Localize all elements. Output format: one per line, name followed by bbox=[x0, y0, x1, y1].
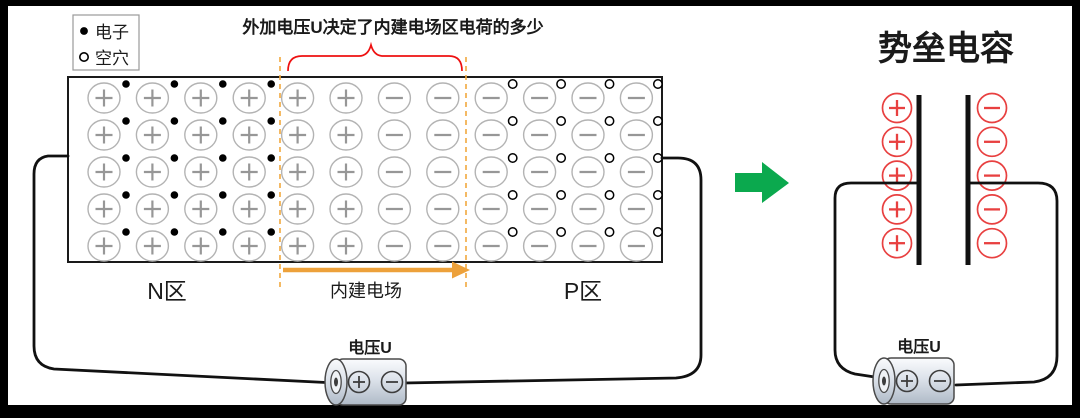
capacitor-title: 势垒电容 bbox=[878, 30, 1014, 68]
legend-label-electron: 电子 bbox=[95, 23, 129, 42]
battery-right bbox=[873, 358, 954, 404]
diagram-canvas: 电子 空穴 外加电压U决定了内建电场区电荷的多少 N区 内建电场 P区 电压U … bbox=[0, 0, 1080, 418]
p-region-label: P区 bbox=[564, 278, 602, 304]
field-label: 内建电场 bbox=[330, 281, 402, 301]
battery-left bbox=[325, 359, 406, 405]
hole-circle-icon bbox=[80, 53, 88, 61]
legend-label-hole: 空穴 bbox=[95, 49, 129, 68]
battery-right-label: 电压U bbox=[897, 337, 941, 356]
n-region-label: N区 bbox=[147, 278, 187, 304]
electron-dot-icon bbox=[80, 27, 88, 35]
annotation-text: 外加电压U决定了内建电场区电荷的多少 bbox=[242, 17, 543, 37]
legend: 电子 空穴 bbox=[73, 15, 139, 70]
diagram-stage: 电子 空穴 外加电压U决定了内建电场区电荷的多少 N区 内建电场 P区 电压U … bbox=[0, 0, 1080, 418]
battery-left-label: 电压U bbox=[348, 338, 392, 357]
